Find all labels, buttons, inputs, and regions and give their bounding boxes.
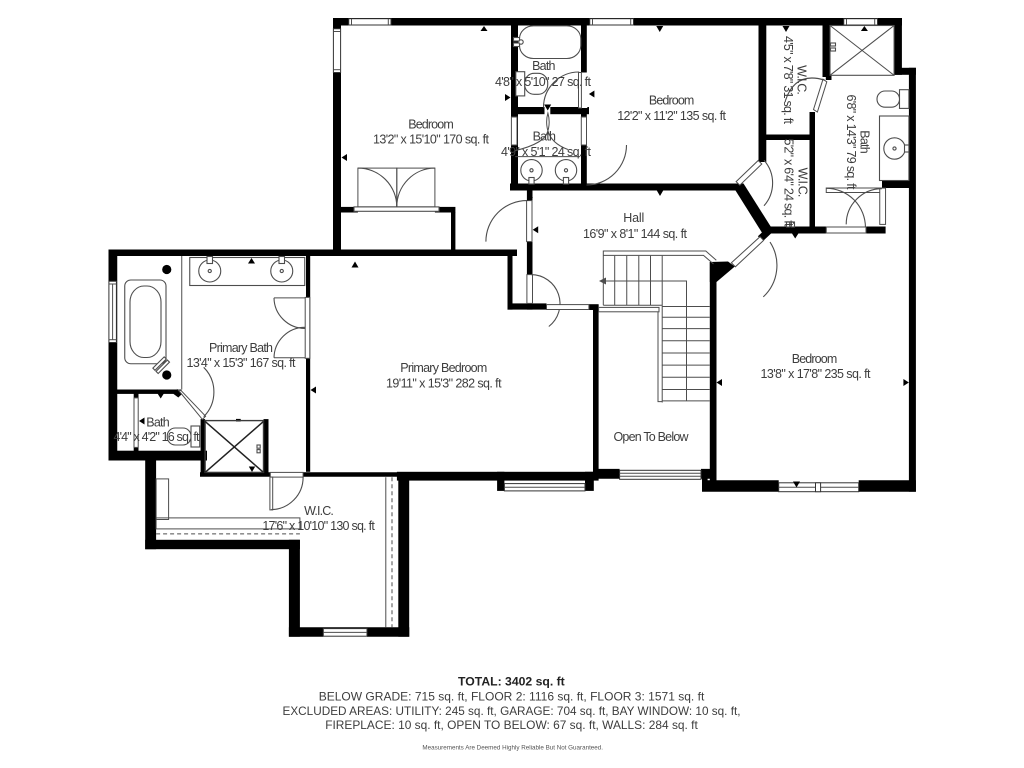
svg-text:Bath: Bath	[533, 130, 556, 144]
svg-text:Bath: Bath	[146, 415, 169, 429]
svg-text:16'9" x 8'1" 144 sq. ft: 16'9" x 8'1" 144 sq. ft	[583, 227, 688, 241]
svg-text:6'8" x 14'3" 79 sq. ft: 6'8" x 14'3" 79 sq. ft	[844, 95, 858, 191]
svg-text:13'8" x 17'8" 235 sq. ft: 13'8" x 17'8" 235 sq. ft	[761, 367, 872, 381]
svg-text:19'11" x 15'3" 282 sq. ft: 19'11" x 15'3" 282 sq. ft	[386, 376, 502, 390]
svg-text:Hall: Hall	[623, 211, 644, 225]
svg-text:TOTAL: 3402 sq. ft: TOTAL: 3402 sq. ft	[458, 675, 565, 689]
svg-text:W.I.C.: W.I.C.	[795, 65, 809, 95]
svg-text:EXCLUDED AREAS: UTILITY: 245 s: EXCLUDED AREAS: UTILITY: 245 sq. ft, GAR…	[283, 704, 741, 718]
svg-text:5'2" x 6'4" 24 sq. ft: 5'2" x 6'4" 24 sq. ft	[782, 139, 796, 228]
svg-text:Primary Bedroom: Primary Bedroom	[400, 361, 487, 375]
svg-text:FIREPLACE: 10 sq. ft, OPEN TO: FIREPLACE: 10 sq. ft, OPEN TO BELOW: 67 …	[325, 718, 698, 732]
svg-text:4'9" x 5'1" 24 sq. ft: 4'9" x 5'1" 24 sq. ft	[501, 145, 592, 159]
svg-text:17'6" x 10'10" 130 sq. ft: 17'6" x 10'10" 130 sq. ft	[262, 519, 375, 533]
svg-text:Primary Bath: Primary Bath	[209, 341, 273, 355]
svg-text:Measurements Are Deemed Highly: Measurements Are Deemed Highly Reliable …	[422, 744, 603, 751]
svg-text:4'8" x 5'10" 27 sq. ft: 4'8" x 5'10" 27 sq. ft	[495, 75, 592, 89]
svg-text:W.I.C.: W.I.C.	[796, 168, 810, 198]
svg-text:Bath: Bath	[532, 59, 555, 73]
svg-text:W.I.C.: W.I.C.	[304, 504, 334, 518]
svg-text:4'5" x 7'8" 31 sq. ft: 4'5" x 7'8" 31 sq. ft	[781, 36, 795, 125]
svg-text:Bath: Bath	[858, 130, 872, 153]
svg-text:Bedroom: Bedroom	[408, 117, 454, 131]
svg-text:13'2" x 15'10" 170 sq. ft: 13'2" x 15'10" 170 sq. ft	[373, 132, 490, 146]
svg-text:Bedroom: Bedroom	[792, 352, 838, 366]
svg-text:Bedroom: Bedroom	[649, 93, 695, 107]
svg-text:4'4" x 4'2" 16 sq. ft: 4'4" x 4'2" 16 sq. ft	[114, 430, 201, 444]
svg-text:13'4" x 15'3" 167 sq. ft: 13'4" x 15'3" 167 sq. ft	[187, 356, 297, 370]
svg-text:12'2" x 11'2" 135 sq. ft: 12'2" x 11'2" 135 sq. ft	[617, 109, 726, 123]
svg-text:Open To Below: Open To Below	[614, 430, 690, 444]
svg-text:BELOW GRADE: 715 sq. ft, FLOOR: BELOW GRADE: 715 sq. ft, FLOOR 2: 1116 s…	[319, 689, 705, 703]
